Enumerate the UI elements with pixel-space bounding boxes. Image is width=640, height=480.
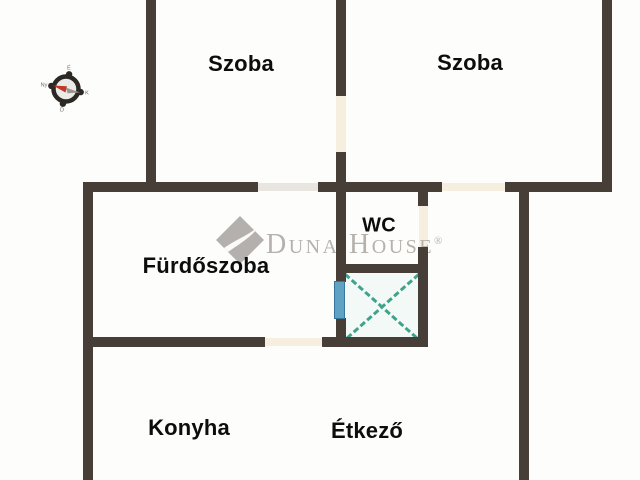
compass-label-w: Ny [41,83,48,89]
compass-label-s: D [60,108,64,114]
compass-label-e: K [85,91,89,97]
floor-plan: Duna House® SzobaSzobaWCFürdőszobaKonyha… [0,0,640,480]
compass-body: É K D Ny [41,65,90,114]
compass-rose-icon: É K D Ny [0,0,640,480]
compass-label-n: É [67,65,71,72]
